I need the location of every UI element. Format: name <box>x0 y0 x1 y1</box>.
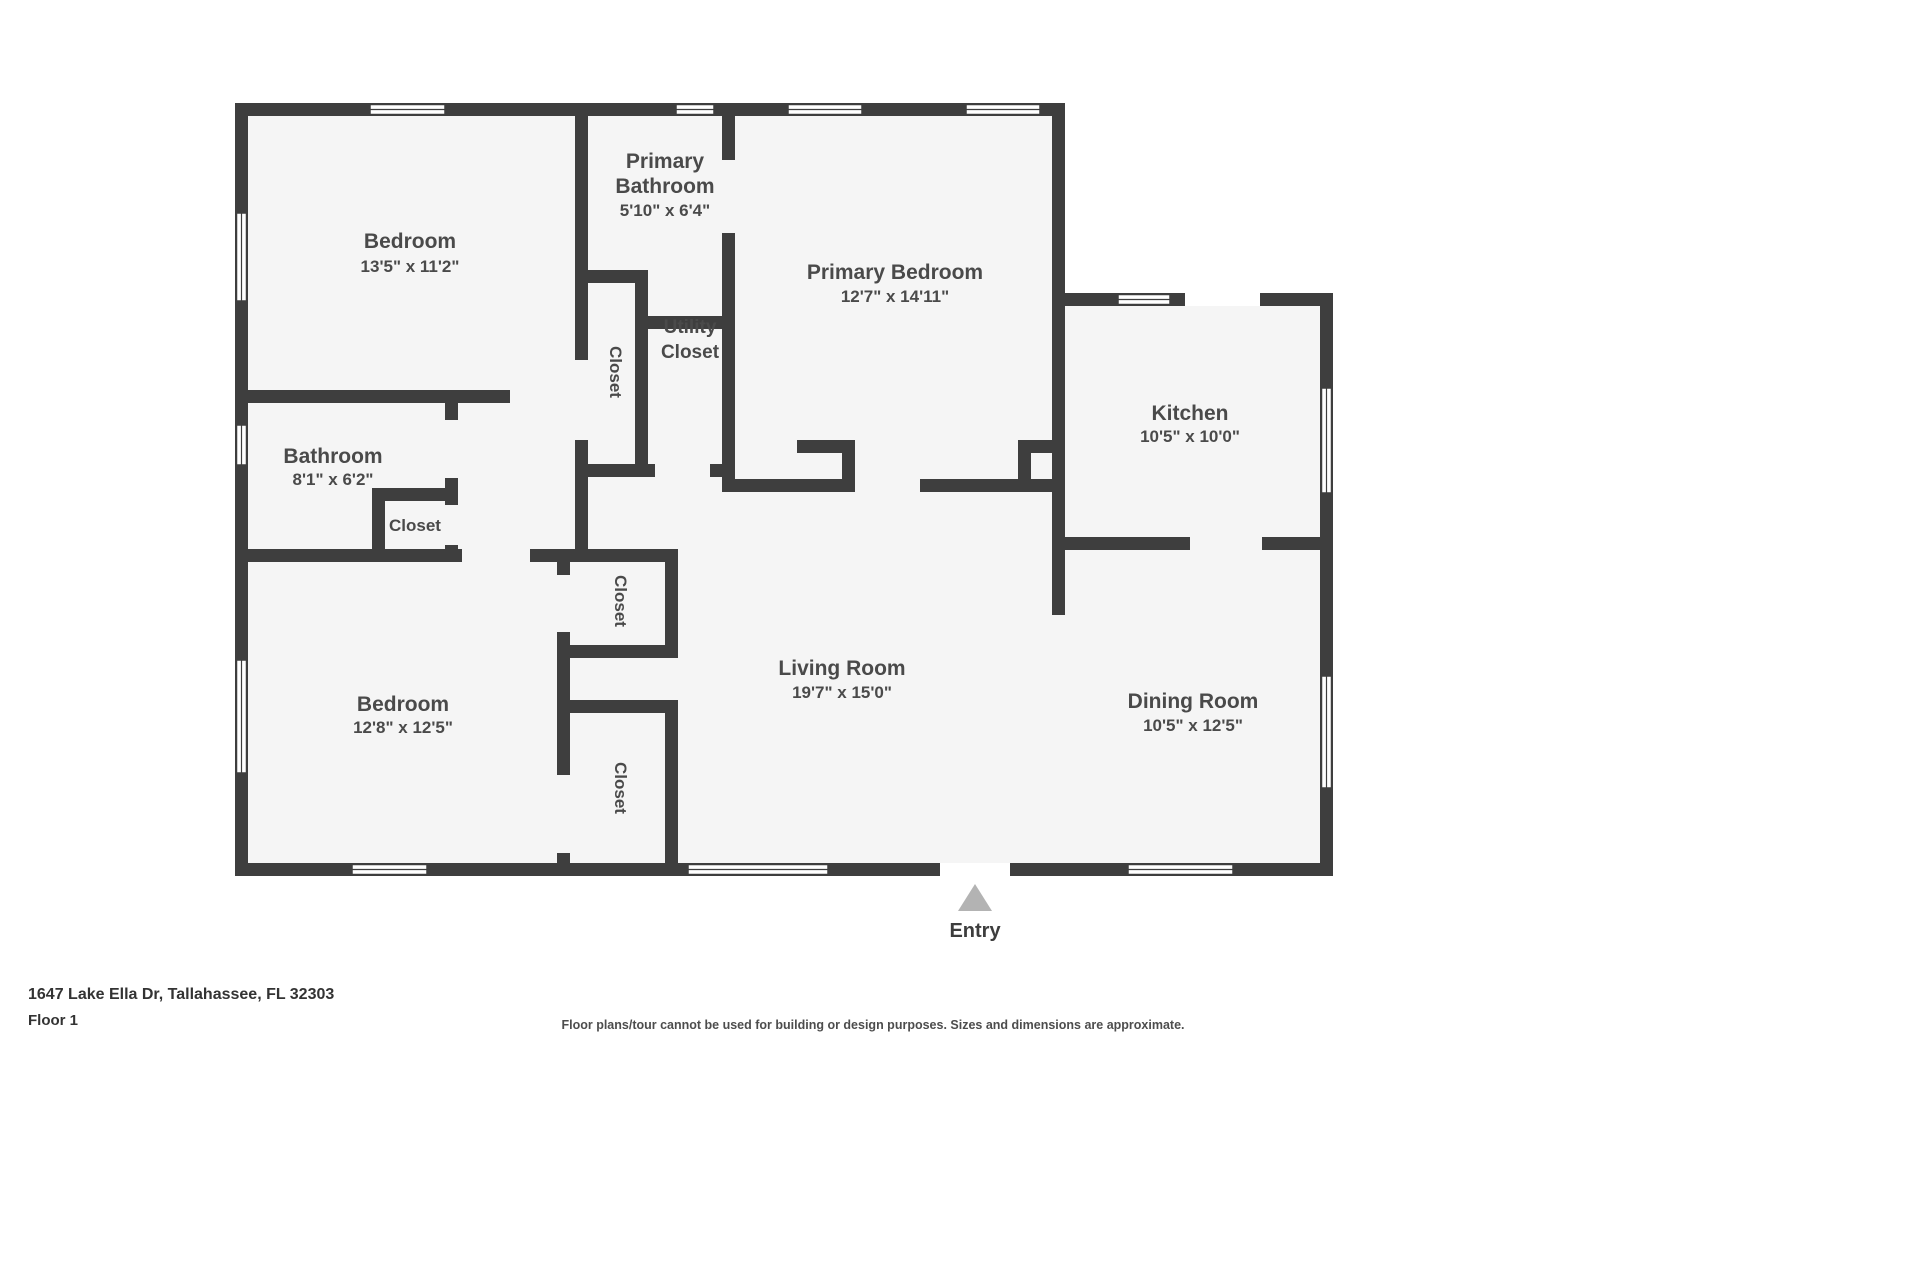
floor-number-text: Floor 1 <box>28 1012 78 1029</box>
primary-bathroom-label-line2: Bathroom <box>615 175 714 198</box>
primary-bathroom-dims: 5'10" x 6'4" <box>620 201 710 220</box>
kitchen-door-opening <box>1185 293 1260 306</box>
kitchen-label: Kitchen <box>1151 402 1228 425</box>
bedroom-bottom-left-dims: 12'8" x 12'5" <box>353 718 453 737</box>
primary-closet-label: Closet <box>606 346 625 398</box>
bathroom-dims: 8'1" x 6'2" <box>293 470 374 489</box>
dining-room-dims: 10'5" x 12'5" <box>1143 716 1243 735</box>
living-room-label: Living Room <box>778 657 905 680</box>
primary-bathroom-label-line1: Primary <box>626 150 705 173</box>
primary-bedroom-dims: 12'7" x 14'11" <box>841 287 949 306</box>
bedroom-top-left-label: Bedroom <box>364 230 456 253</box>
mid-closet-lower-label: Closet <box>611 762 630 814</box>
primary-bedroom-label: Primary Bedroom <box>807 261 983 284</box>
dining-room-label: Dining Room <box>1128 690 1259 713</box>
entry-label: Entry <box>949 920 1001 942</box>
entry-door-opening <box>940 863 1010 876</box>
disclaimer-text: Floor plans/tour cannot be used for buil… <box>561 1018 1184 1032</box>
kitchen-dims: 10'5" x 10'0" <box>1140 427 1240 446</box>
hall-closet-label: Closet <box>389 516 441 535</box>
utility-closet-label-line2: Closet <box>661 342 720 363</box>
living-room-dims: 19'7" x 15'0" <box>792 683 892 702</box>
bedroom-bottom-left-label: Bedroom <box>357 693 449 716</box>
address-text: 1647 Lake Ella Dr, Tallahassee, FL 32303 <box>28 986 334 1003</box>
bedroom-top-left-dims: 13'5" x 11'2" <box>361 257 460 276</box>
floor-plan-svg: Bedroom 13'5" x 11'2" Primary Bathroom 5… <box>0 0 1920 1280</box>
bathroom-label: Bathroom <box>283 445 382 468</box>
entry-arrow-icon <box>958 884 992 911</box>
utility-closet-label-line1: Utility <box>664 317 717 338</box>
mid-closet-upper-label: Closet <box>611 575 630 627</box>
floor-plan-page: Bedroom 13'5" x 11'2" Primary Bathroom 5… <box>0 0 1920 1280</box>
